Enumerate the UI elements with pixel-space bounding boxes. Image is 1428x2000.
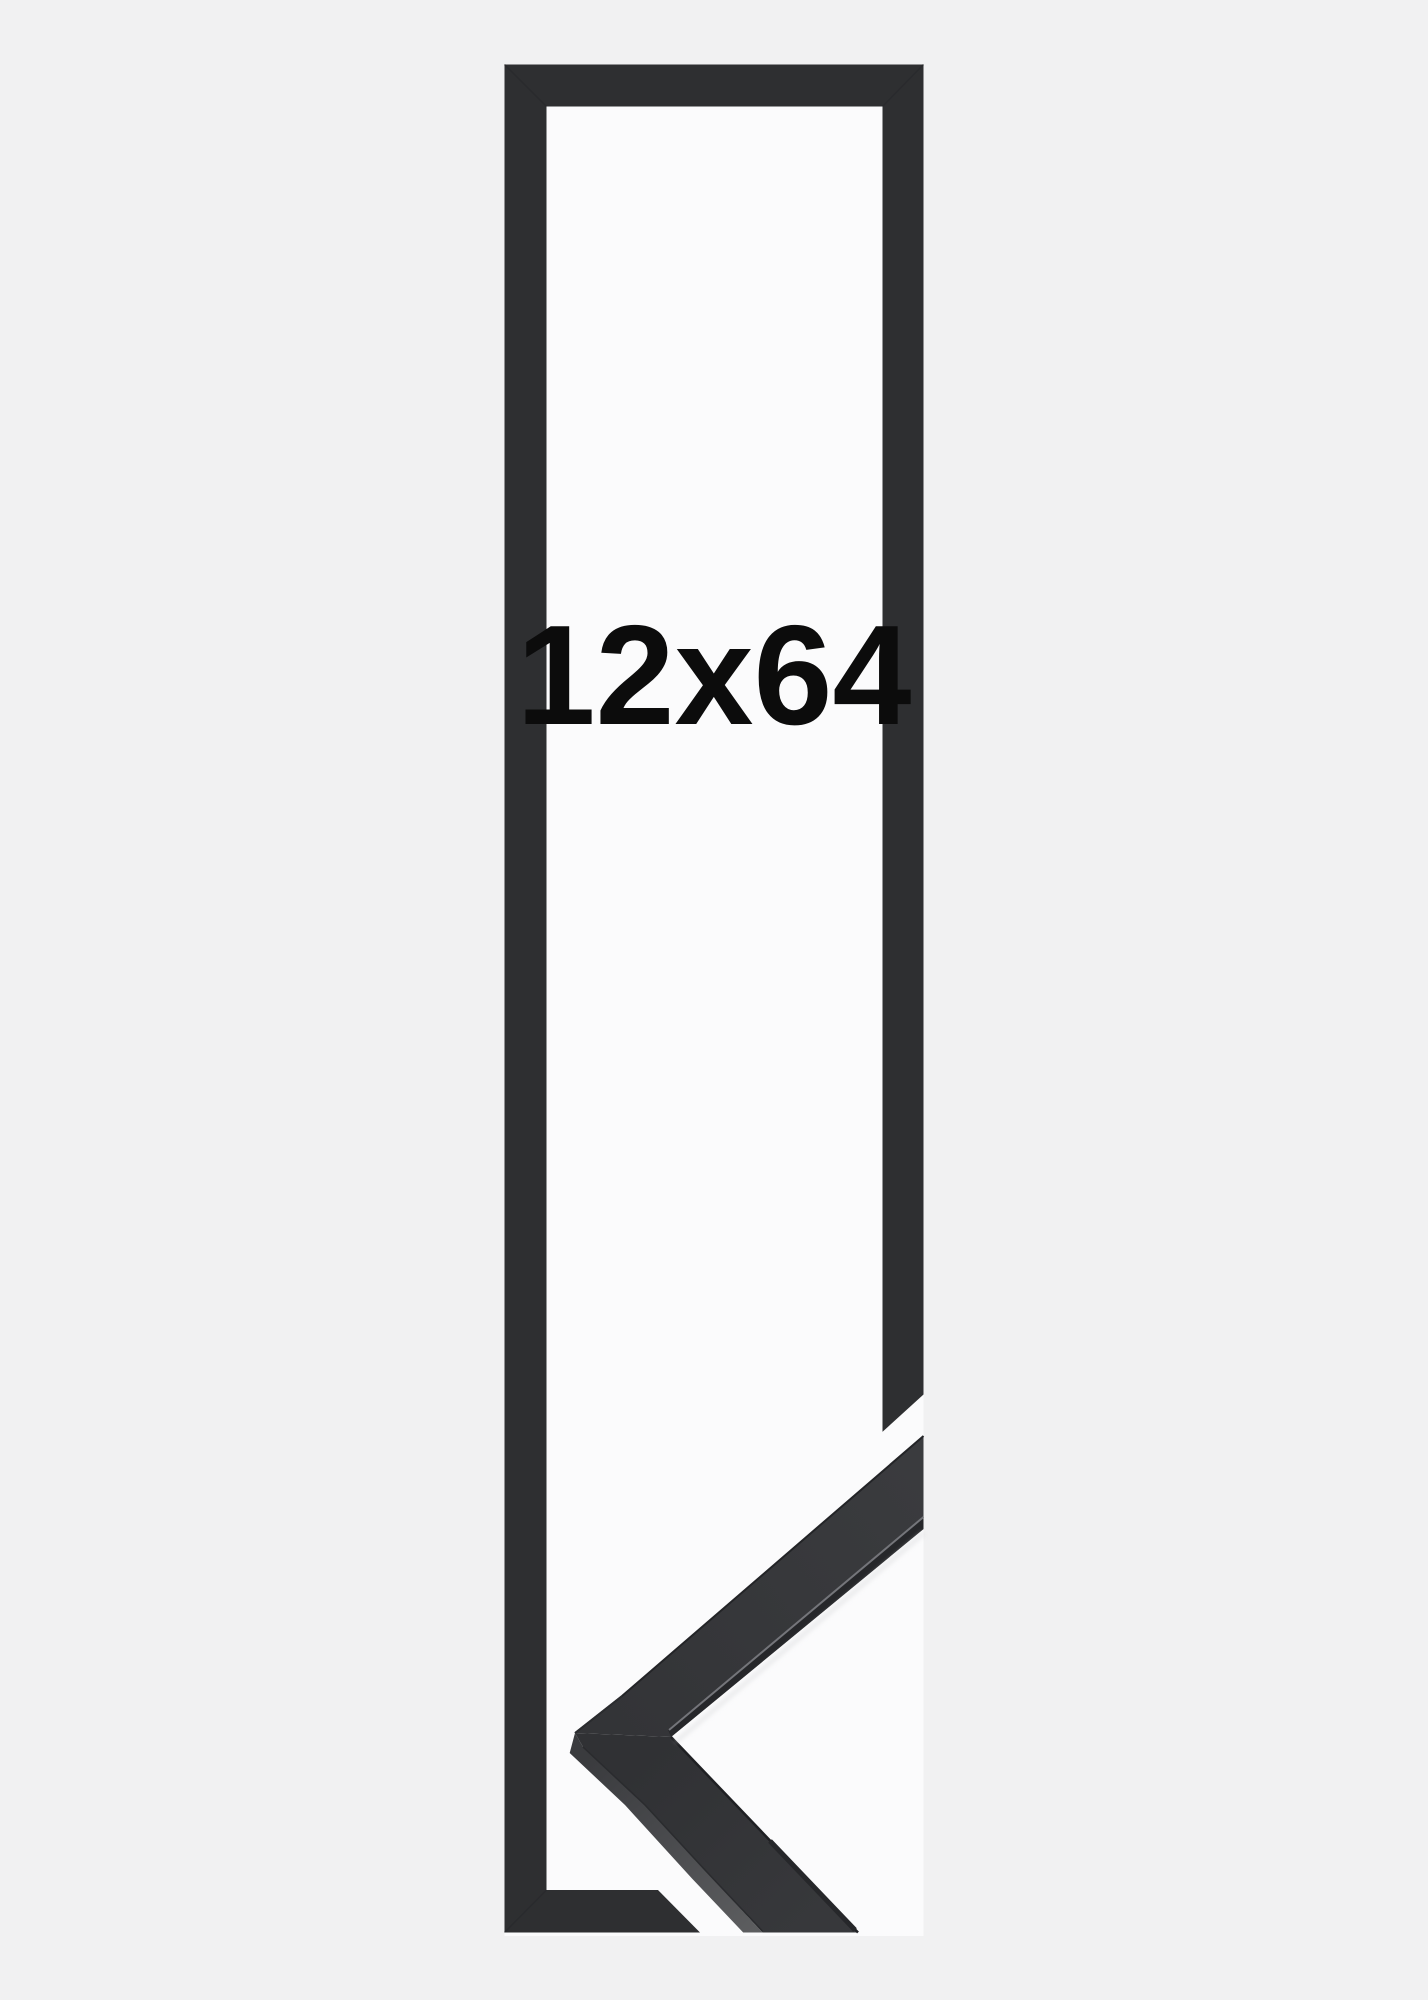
svg-text:12x64: 12x64 [517, 596, 912, 755]
